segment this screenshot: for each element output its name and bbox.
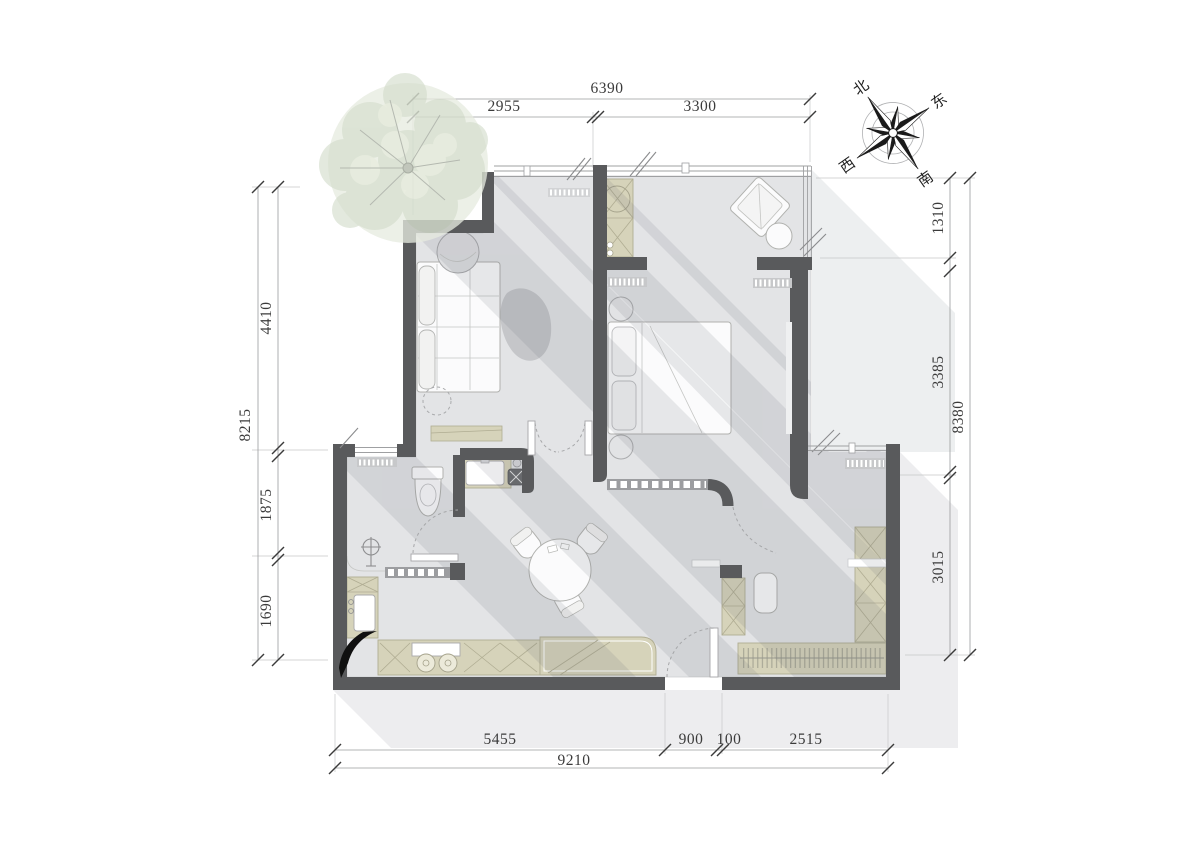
wall-bedroom-right — [790, 264, 808, 499]
tree — [319, 73, 488, 243]
bathroom-door-leaf — [411, 554, 458, 561]
wall-stub — [720, 565, 742, 578]
sofa-back-cushion — [419, 266, 435, 325]
dim-top-seg2: 3300 — [684, 98, 717, 115]
door-pocket-strip — [786, 322, 792, 434]
dim-bottom-seg1: 5455 — [484, 731, 517, 748]
floor-plan-svg: 6390 2955 3300 8215 4410 — [0, 0, 1200, 848]
prep-sink — [412, 643, 460, 656]
balcony-table — [766, 223, 792, 249]
dim-right-seg2: 3385 — [930, 356, 947, 389]
tree-trunk — [403, 163, 413, 173]
glass-partition-bedroom — [607, 479, 708, 490]
wall — [722, 677, 900, 690]
window-mullion — [524, 166, 530, 176]
dim-right-total: 8380 — [950, 401, 967, 434]
compass-west-label: 西 — [836, 154, 859, 177]
dim-bottom-total: 9210 — [558, 752, 591, 769]
tv-bench — [431, 426, 502, 441]
kitchen-sink — [354, 595, 375, 631]
wall — [333, 677, 665, 690]
dim-bottom-seg4: 2515 — [790, 731, 823, 748]
compass-south-label: 南 — [914, 167, 937, 190]
compass-north-label: 北 — [850, 76, 873, 99]
window-mullion — [682, 163, 689, 173]
wall-bedroom-left — [593, 165, 607, 482]
wall-bath-right — [453, 455, 465, 517]
wall — [397, 444, 416, 457]
wall — [886, 444, 900, 690]
dim-top-total: 6390 — [591, 80, 624, 97]
folding-door-panel — [585, 421, 592, 455]
wall — [403, 231, 416, 457]
dim-bottom-seg3: 100 — [717, 731, 742, 748]
sofa-back-cushion — [419, 330, 435, 389]
folding-door-panel — [528, 421, 535, 455]
floor-plan-page: 6390 2955 3300 8215 4410 — [0, 0, 1200, 848]
cooktop-burner — [439, 654, 457, 672]
dim-bottom-seg2: 900 — [679, 731, 704, 748]
dim-right-seg3: 3015 — [930, 551, 947, 584]
dim-right-seg1: 1310 — [930, 202, 947, 235]
cooktop-burner — [417, 654, 435, 672]
window-mullion — [849, 443, 855, 453]
compass-east-label: 东 — [928, 89, 951, 112]
wall — [593, 257, 647, 270]
entry-door-leaf — [710, 628, 718, 677]
dim-top-seg1: 2955 — [488, 98, 521, 115]
glass-partition-bathroom — [385, 567, 450, 578]
dim-left-seg3: 1690 — [258, 595, 275, 628]
wall-stub — [450, 563, 465, 580]
dim-left-total: 8215 — [237, 409, 254, 442]
dim-left-seg1: 4410 — [258, 302, 275, 335]
dim-left-seg2: 1875 — [258, 489, 275, 522]
dimension-left: 8215 4410 1875 1690 — [237, 181, 328, 666]
